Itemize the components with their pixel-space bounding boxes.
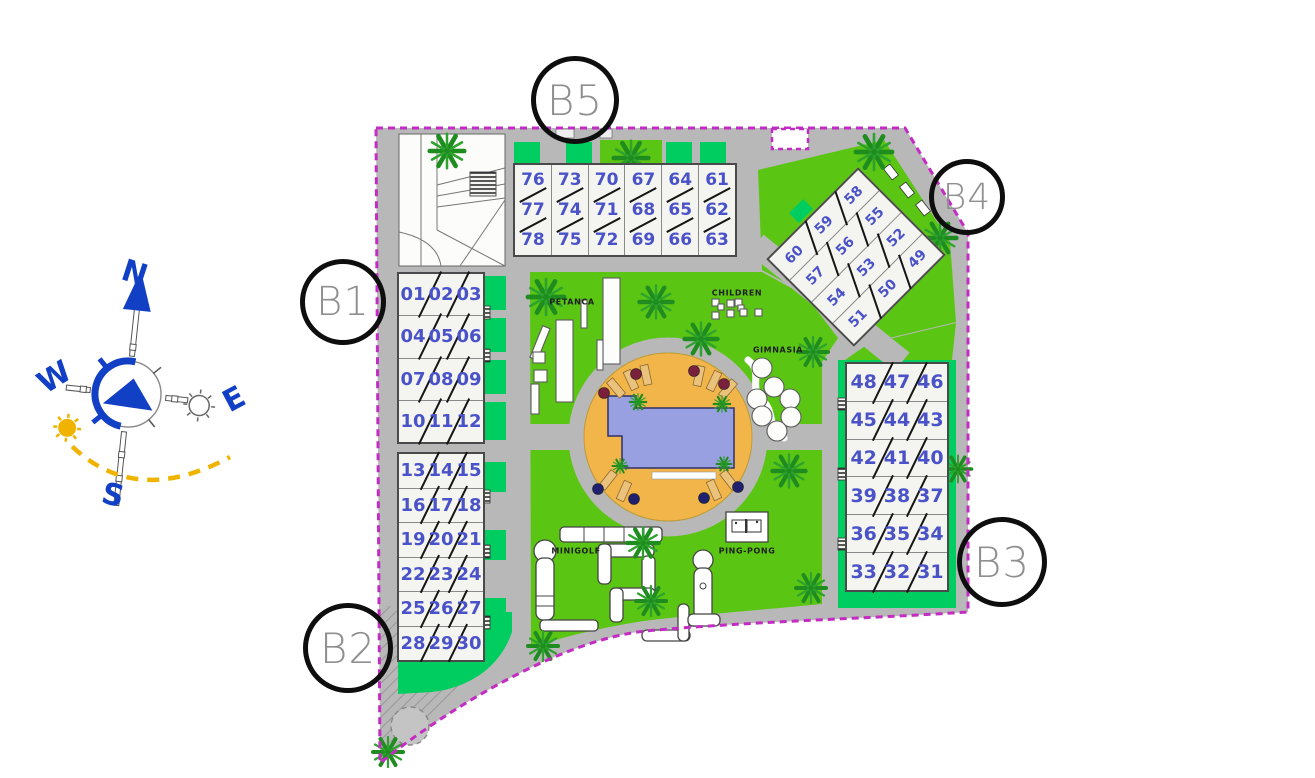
- block-label-b2: B2: [303, 603, 393, 693]
- unit-row: 363534: [847, 515, 947, 553]
- unit-77: 77: [515, 195, 551, 225]
- unit-17: 17: [427, 489, 455, 523]
- unit-73: 73: [552, 165, 588, 195]
- unit-row: 393837: [847, 477, 947, 515]
- unit-32: 32: [880, 553, 913, 590]
- unit-61: 61: [699, 165, 735, 195]
- unit-40: 40: [914, 440, 947, 477]
- east-sun-icon: [182, 388, 217, 423]
- unit-46: 46: [914, 364, 947, 401]
- unit-row: 131415: [399, 454, 483, 489]
- unit-64: 64: [662, 165, 698, 195]
- unit-row: 333231: [847, 553, 947, 590]
- unit-67: 67: [625, 165, 661, 195]
- unit-20: 20: [427, 523, 455, 557]
- reserved-plot: [772, 129, 808, 149]
- site-plan-graphics: [0, 0, 1315, 778]
- unit-24: 24: [455, 558, 483, 592]
- petanca-label: PETANCA: [549, 298, 594, 307]
- minigolf-label: MINIGOLF: [551, 547, 600, 556]
- sunset-sun-icon: [52, 412, 83, 443]
- unit-row: 646566: [662, 165, 699, 255]
- unit-row: 707172: [589, 165, 626, 255]
- unit-23: 23: [427, 558, 455, 592]
- unit-10: 10: [399, 401, 427, 442]
- unit-19: 19: [399, 523, 427, 557]
- building-b5[interactable]: 767778737475707172676869646566616263: [513, 163, 737, 257]
- unit-72: 72: [589, 225, 625, 255]
- unit-13: 13: [399, 454, 427, 488]
- unit-08: 08: [427, 359, 455, 400]
- unit-39: 39: [847, 477, 880, 514]
- unit-28: 28: [399, 627, 427, 661]
- block-label-b1: B1: [300, 259, 386, 345]
- building-b1[interactable]: 010203040506070809101112: [397, 272, 485, 444]
- building-b2[interactable]: 131415161718192021222324252627282930: [397, 452, 485, 662]
- unit-70: 70: [589, 165, 625, 195]
- unit-35: 35: [880, 515, 913, 552]
- unit-26: 26: [427, 592, 455, 626]
- block-label-b5: B5: [531, 56, 619, 144]
- unit-41: 41: [880, 440, 913, 477]
- sun-path-arc: [70, 440, 230, 488]
- unit-09: 09: [455, 359, 483, 400]
- unit-45: 45: [847, 402, 880, 439]
- unit-05: 05: [427, 316, 455, 357]
- pool-area: [584, 353, 752, 521]
- unit-44: 44: [880, 402, 913, 439]
- unit-row: 192021: [399, 523, 483, 558]
- site-plan: 767778737475707172676869646566616263 010…: [0, 0, 1315, 778]
- unit-row: 040506: [399, 316, 483, 358]
- block-label-b3: B3: [957, 517, 1047, 607]
- unit-62: 62: [699, 195, 735, 225]
- unit-33: 33: [847, 553, 880, 590]
- unit-12: 12: [455, 401, 483, 442]
- unit-03: 03: [455, 274, 483, 315]
- unit-25: 25: [399, 592, 427, 626]
- unit-42: 42: [847, 440, 880, 477]
- unit-row: 010203: [399, 274, 483, 316]
- gimnasia-label: GIMNASIA: [753, 346, 803, 355]
- children-label: CHILDREN: [712, 289, 762, 298]
- unit-65: 65: [662, 195, 698, 225]
- unit-69: 69: [625, 225, 661, 255]
- unit-47: 47: [880, 364, 913, 401]
- unit-row: 737475: [552, 165, 589, 255]
- unit-07: 07: [399, 359, 427, 400]
- unit-36: 36: [847, 515, 880, 552]
- unit-63: 63: [699, 225, 735, 255]
- unit-row: 424140: [847, 440, 947, 478]
- unit-15: 15: [455, 454, 483, 488]
- unit-14: 14: [427, 454, 455, 488]
- unit-04: 04: [399, 316, 427, 357]
- unit-22: 22: [399, 558, 427, 592]
- ping-pong-label: PING-PONG: [719, 547, 776, 556]
- unit-row: 616263: [699, 165, 735, 255]
- unit-71: 71: [589, 195, 625, 225]
- unit-38: 38: [880, 477, 913, 514]
- unit-11: 11: [427, 401, 455, 442]
- unit-row: 070809: [399, 359, 483, 401]
- unit-68: 68: [625, 195, 661, 225]
- block-label-b4: B4: [929, 159, 1005, 235]
- unit-21: 21: [455, 523, 483, 557]
- unit-row: 252627: [399, 592, 483, 627]
- unit-06: 06: [455, 316, 483, 357]
- unit-48: 48: [847, 364, 880, 401]
- unit-76: 76: [515, 165, 551, 195]
- unit-row: 222324: [399, 558, 483, 593]
- unit-27: 27: [455, 592, 483, 626]
- unit-66: 66: [662, 225, 698, 255]
- unit-30: 30: [455, 627, 483, 661]
- unit-31: 31: [914, 553, 947, 590]
- unit-row: 676869: [625, 165, 662, 255]
- unit-row: 454443: [847, 402, 947, 440]
- unit-row: 101112: [399, 401, 483, 442]
- unit-78: 78: [515, 225, 551, 255]
- unit-row: 484746: [847, 364, 947, 402]
- unit-row: 161718: [399, 489, 483, 524]
- unit-29: 29: [427, 627, 455, 661]
- unit-34: 34: [914, 515, 947, 552]
- unit-74: 74: [552, 195, 588, 225]
- unit-row: 767778: [515, 165, 552, 255]
- unit-01: 01: [399, 274, 427, 315]
- unit-37: 37: [914, 477, 947, 514]
- unit-18: 18: [455, 489, 483, 523]
- unit-16: 16: [399, 489, 427, 523]
- unit-43: 43: [914, 402, 947, 439]
- ping-pong-table: [726, 512, 768, 542]
- unit-75: 75: [552, 225, 588, 255]
- unit-row: 282930: [399, 627, 483, 661]
- building-b3[interactable]: 484746454443424140393837363534333231: [845, 362, 949, 592]
- unit-02: 02: [427, 274, 455, 315]
